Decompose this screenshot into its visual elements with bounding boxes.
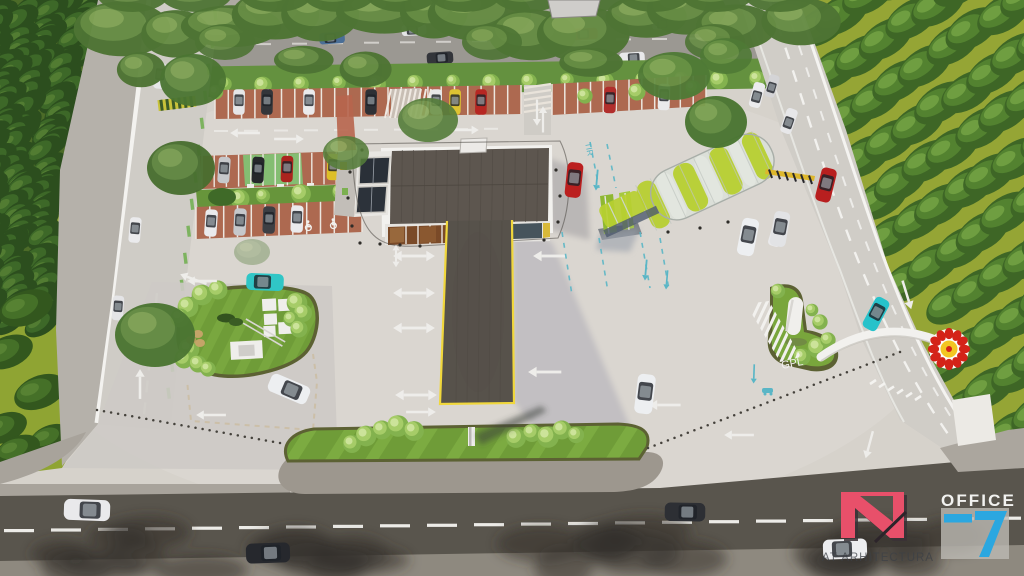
svg-text:OFFICE: OFFICE: [941, 491, 1016, 510]
svg-text:AT ARHITECTURA: AT ARHITECTURA: [822, 552, 934, 564]
